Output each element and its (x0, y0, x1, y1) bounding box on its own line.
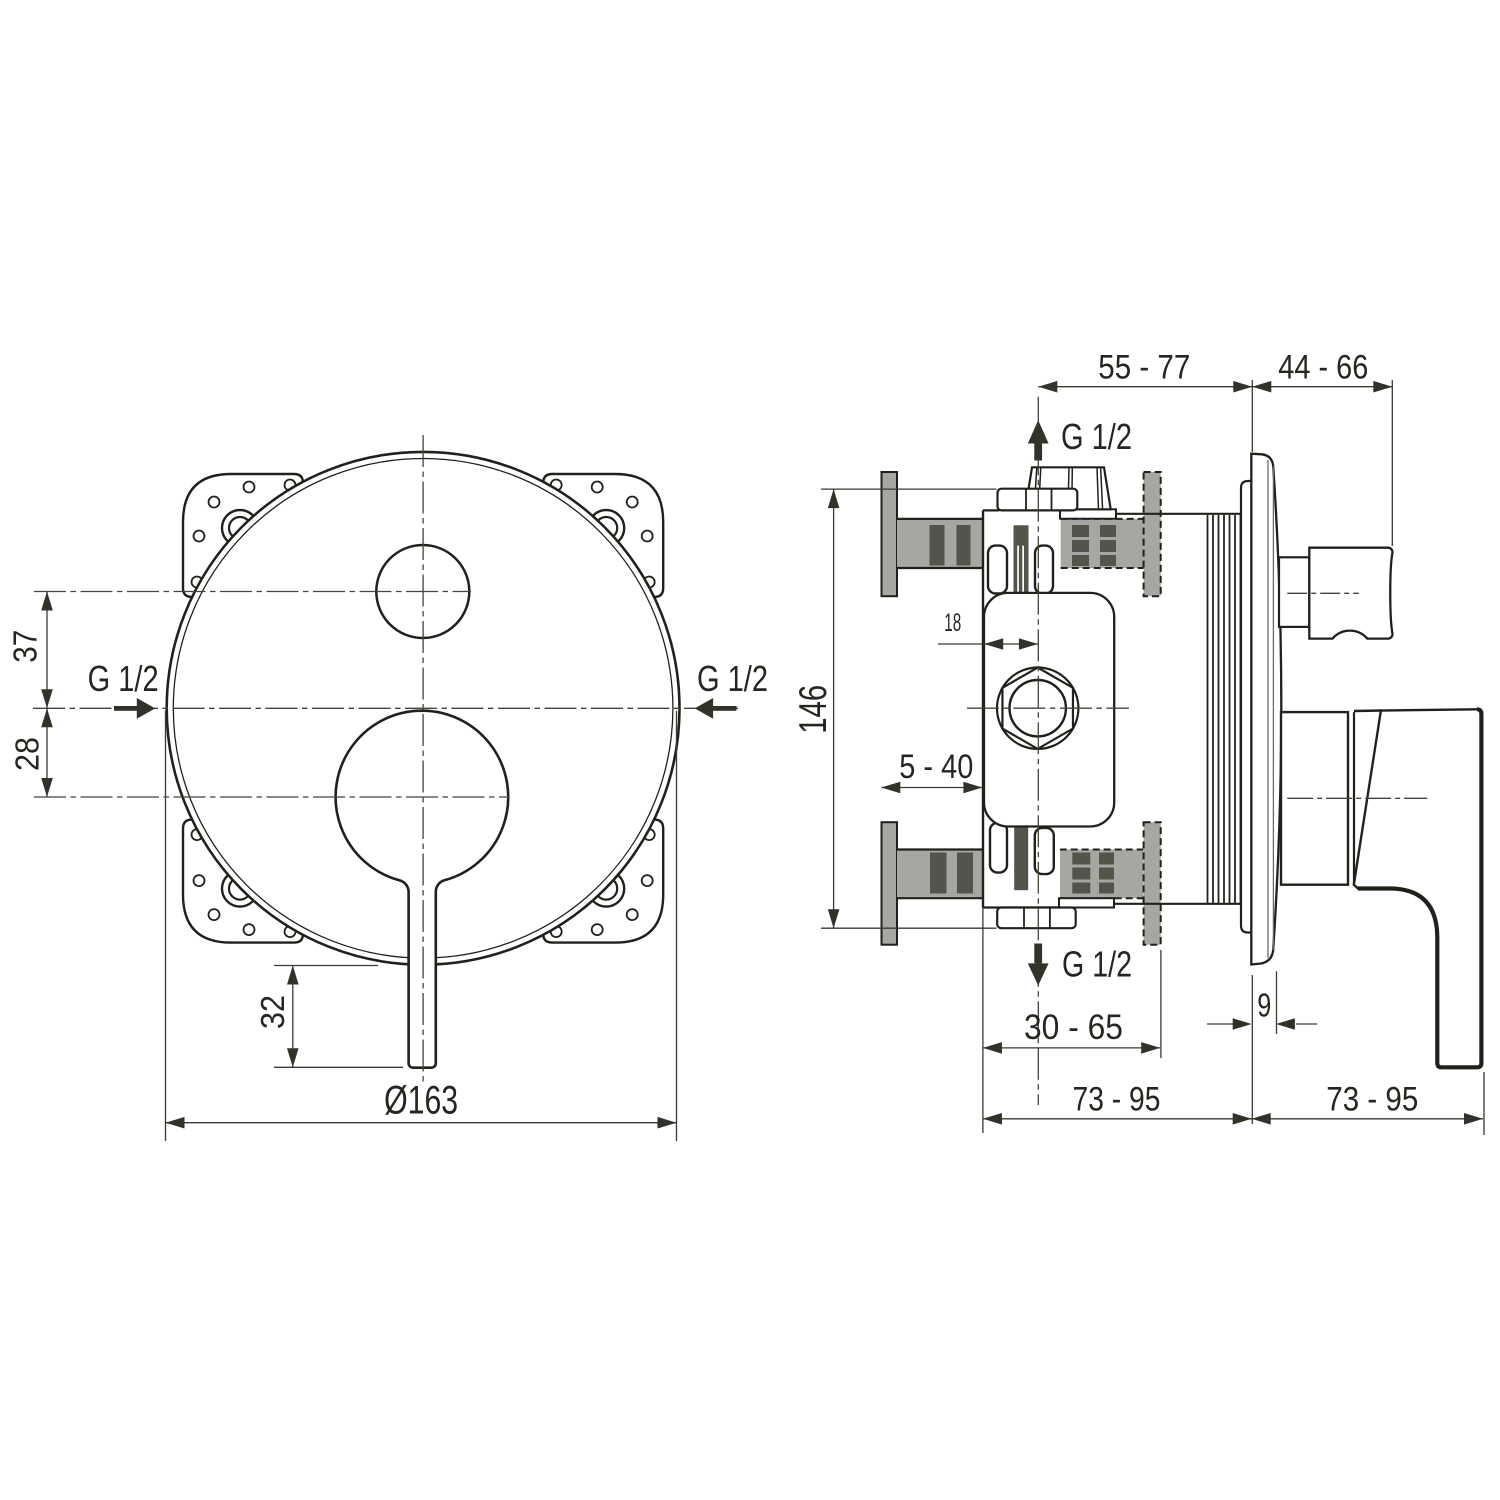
svg-text:73 - 95: 73 - 95 (1073, 1081, 1161, 1119)
svg-text:G 1/2: G 1/2 (697, 658, 768, 699)
svg-text:146: 146 (792, 685, 835, 734)
svg-text:44 - 66: 44 - 66 (1278, 348, 1368, 386)
svg-text:Ø163: Ø163 (384, 1079, 458, 1123)
svg-text:37: 37 (7, 630, 44, 663)
svg-text:28: 28 (8, 737, 45, 771)
svg-text:18: 18 (944, 609, 961, 637)
svg-text:32: 32 (254, 995, 291, 1029)
svg-text:30 - 65: 30 - 65 (1024, 1008, 1123, 1047)
svg-text:55 - 77: 55 - 77 (1098, 348, 1190, 386)
svg-text:9: 9 (1257, 987, 1271, 1024)
svg-text:G 1/2: G 1/2 (1062, 944, 1132, 985)
svg-text:G 1/2: G 1/2 (88, 658, 159, 699)
svg-text:73 - 95: 73 - 95 (1326, 1081, 1418, 1119)
svg-text:G 1/2: G 1/2 (1061, 416, 1132, 457)
svg-text:5 - 40: 5 - 40 (899, 748, 973, 786)
